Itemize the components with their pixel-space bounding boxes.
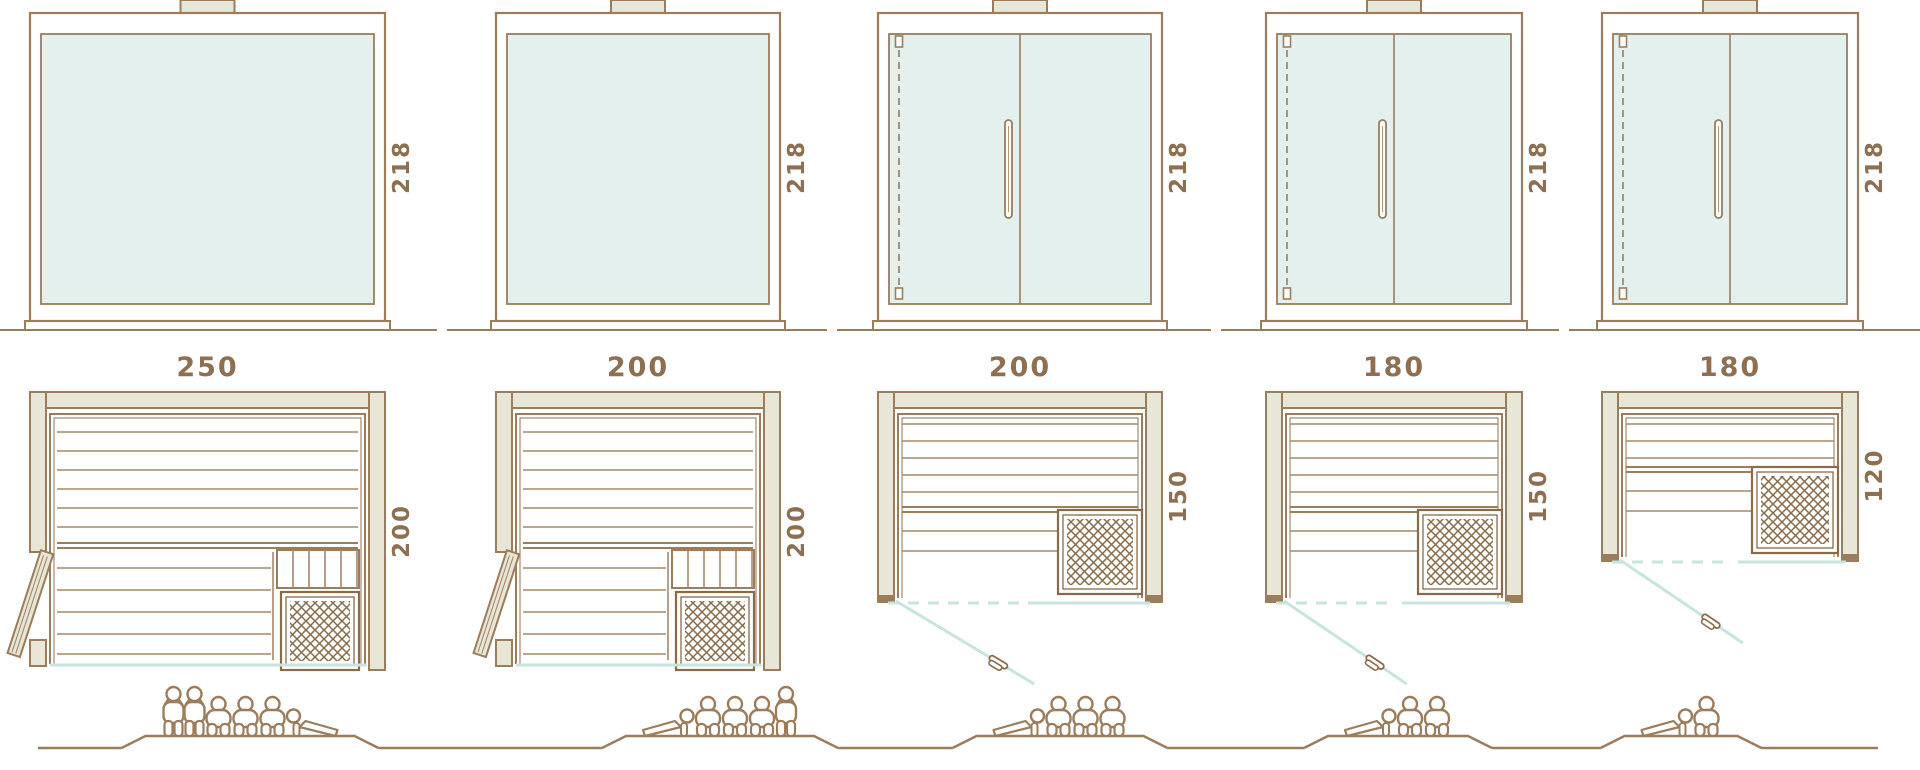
heater <box>281 592 359 670</box>
door-handle <box>1715 120 1722 218</box>
capacity-figure-standing <box>185 687 205 736</box>
height-label: 218 <box>1526 140 1552 194</box>
plan-left-wall <box>1266 392 1282 600</box>
glass-panel <box>507 34 769 304</box>
width-label: 200 <box>607 352 669 383</box>
headrest-slats <box>672 550 754 588</box>
sauna-size-diagram: 2182502002182002002182001502181801502181… <box>0 0 1920 770</box>
capacity-figure-lying <box>643 710 694 737</box>
top-vent <box>1367 0 1421 13</box>
people-platform <box>602 736 838 748</box>
depth-label: 200 <box>389 504 415 558</box>
people-platform <box>953 736 1168 748</box>
capacity-figure-sitting <box>696 697 720 736</box>
model-sauna-180x150: 218180150 <box>1261 0 1552 684</box>
front-elevation: 218 <box>491 0 810 330</box>
depth-label: 120 <box>1862 448 1888 502</box>
people-platform <box>1601 736 1762 748</box>
top-vent <box>1703 0 1757 13</box>
model-sauna-200x200: 218200200 <box>474 0 810 670</box>
hinge-top <box>1284 36 1291 47</box>
depth-label: 200 <box>784 504 810 558</box>
height-label: 218 <box>1862 140 1888 194</box>
capacity-figure-sitting <box>1047 697 1071 736</box>
capacity-figure-sitting <box>1074 697 1098 736</box>
heater-grill <box>290 601 350 661</box>
plan-right-wall <box>764 392 780 670</box>
floor-plan <box>8 392 385 670</box>
front-elevation: 218 <box>873 0 1192 330</box>
glass-door-swing <box>1620 560 1743 643</box>
floor-plan <box>474 392 780 670</box>
front-elevation: 218 <box>1597 0 1888 330</box>
door-handle <box>1699 613 1721 632</box>
heater <box>1418 510 1502 594</box>
heater-grill <box>1067 519 1133 585</box>
glass-panel <box>41 34 374 304</box>
model-sauna-250x200: 218250200 <box>8 0 415 670</box>
capacity-figure-sitting <box>234 697 258 736</box>
window-sill <box>25 321 390 330</box>
door-handle <box>1363 654 1385 673</box>
plan-left-wall <box>496 392 512 552</box>
plan-left-wall <box>30 392 46 552</box>
plan-top-wall <box>30 392 385 408</box>
plan-right-wall <box>1842 392 1858 559</box>
heater <box>676 592 754 670</box>
hinge-top <box>1620 36 1627 47</box>
headrest-slats <box>277 550 359 588</box>
glass-door-swing <box>896 601 1034 684</box>
capacity-figure-lying <box>287 710 338 737</box>
capacity-figure-sitting <box>1425 697 1449 736</box>
top-vent <box>181 0 235 13</box>
plan-right-wall <box>1506 392 1522 600</box>
capacity-figure-sitting <box>1398 697 1422 736</box>
model-sauna-200x150: 218200150 <box>873 0 1192 684</box>
hinge-bottom <box>1284 288 1291 299</box>
plan-door-post <box>30 640 46 666</box>
height-label: 218 <box>389 140 415 194</box>
window-sill <box>491 321 785 330</box>
hinge-top <box>896 36 903 47</box>
glass-door-swing <box>1284 601 1407 684</box>
model-sauna-180x120: 218180120 <box>1597 0 1888 643</box>
front-elevation: 218 <box>1261 0 1552 330</box>
plan-left-wall <box>878 392 894 600</box>
plan-right-wall <box>369 392 385 670</box>
diagram-scene: 2182502002182002002182001502181801502181… <box>0 0 1920 770</box>
width-label: 180 <box>1699 352 1761 383</box>
window-sill <box>873 321 1167 330</box>
plan-top-wall <box>1266 392 1522 408</box>
plan-right-wall <box>1146 392 1162 600</box>
width-label: 250 <box>176 352 238 383</box>
depth-label: 150 <box>1166 469 1192 523</box>
height-label: 218 <box>784 140 810 194</box>
plan-top-wall <box>1602 392 1858 408</box>
capacity-figure-lying <box>1345 710 1396 737</box>
capacity-figure-sitting <box>750 697 774 736</box>
heater <box>1058 510 1142 594</box>
floor-plan <box>877 392 1163 684</box>
capacity-figure-sitting <box>1101 697 1125 736</box>
plan-door-post <box>496 640 512 666</box>
window-sill <box>1261 321 1527 330</box>
heater-grill <box>1427 519 1493 585</box>
capacity-row <box>38 687 1878 748</box>
plan-left-wall <box>1602 392 1618 559</box>
floor-plan <box>1601 392 1859 643</box>
capacity-figure-sitting <box>207 697 231 736</box>
people-platform <box>1304 736 1492 748</box>
capacity-figure-sitting <box>1695 697 1719 736</box>
top-vent <box>993 0 1047 13</box>
width-label: 200 <box>989 352 1051 383</box>
capacity-figure-lying <box>994 710 1045 737</box>
front-elevation: 218 <box>25 0 415 330</box>
capacity-figure-standing <box>164 687 184 736</box>
heater-grill <box>1761 476 1829 544</box>
width-label: 180 <box>1363 352 1425 383</box>
heater <box>1752 467 1838 553</box>
height-label: 218 <box>1166 140 1192 194</box>
capacity-figure-sitting <box>261 697 285 736</box>
door-handle <box>1005 120 1012 218</box>
hinge-bottom <box>896 288 903 299</box>
capacity-figure-lying <box>1642 710 1693 737</box>
people-platform <box>122 736 379 748</box>
floor-plan <box>1265 392 1523 684</box>
capacity-figure-sitting <box>723 697 747 736</box>
depth-label: 150 <box>1526 469 1552 523</box>
hinge-bottom <box>1620 288 1627 299</box>
window-sill <box>1597 321 1863 330</box>
heater-grill <box>685 601 745 661</box>
door-handle <box>1379 120 1386 218</box>
capacity-figure-standing <box>776 687 796 736</box>
plan-top-wall <box>878 392 1162 408</box>
top-vent <box>611 0 665 13</box>
door-handle <box>986 655 1008 673</box>
plan-top-wall <box>496 392 780 408</box>
